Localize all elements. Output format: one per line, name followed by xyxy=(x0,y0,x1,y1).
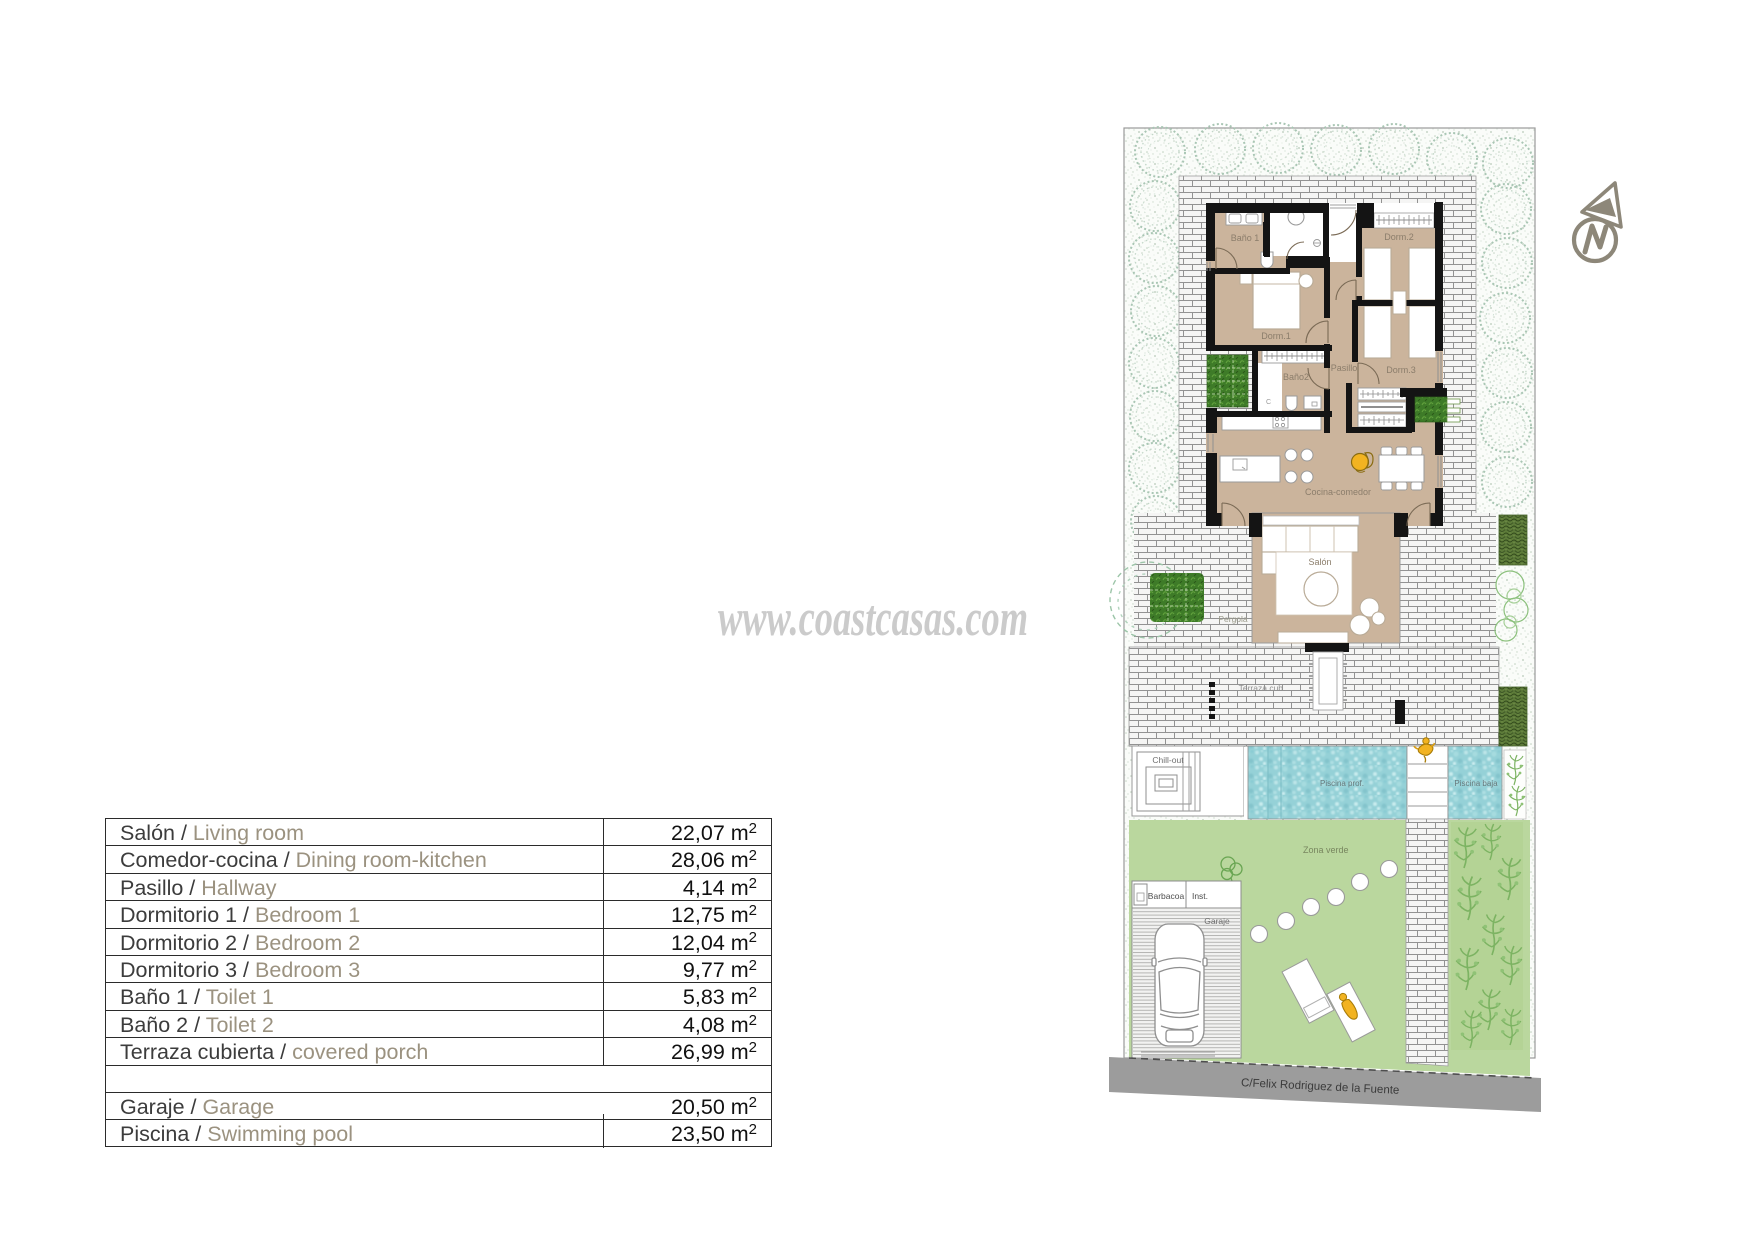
svg-text:Terraza cub.: Terraza cub. xyxy=(1239,683,1286,693)
svg-text:Dorm.2: Dorm.2 xyxy=(1384,232,1414,242)
svg-text:Piscina baja: Piscina baja xyxy=(1454,779,1498,788)
svg-text:Baño 1: Baño 1 xyxy=(1231,233,1260,243)
svg-text:Inst.: Inst. xyxy=(1192,891,1208,901)
svg-text:Zona verde: Zona verde xyxy=(1303,845,1349,855)
svg-text:Piscina prof.: Piscina prof. xyxy=(1320,779,1364,788)
svg-text:Dorm.1: Dorm.1 xyxy=(1261,331,1291,341)
svg-text:Garaje: Garaje xyxy=(1204,916,1230,926)
svg-text:Dorm.3: Dorm.3 xyxy=(1386,365,1416,375)
svg-text:Cocina-comedor: Cocina-comedor xyxy=(1305,487,1371,497)
svg-text:Pasillo: Pasillo xyxy=(1331,363,1358,373)
svg-text:Baño2: Baño2 xyxy=(1283,372,1309,382)
svg-text:Salón: Salón xyxy=(1308,557,1331,567)
svg-text:Pergola: Pergola xyxy=(1218,614,1248,624)
svg-text:Chill-out: Chill-out xyxy=(1152,755,1184,765)
svg-text:Barbacoa: Barbacoa xyxy=(1148,891,1185,901)
svg-text:C: C xyxy=(1266,399,1271,406)
